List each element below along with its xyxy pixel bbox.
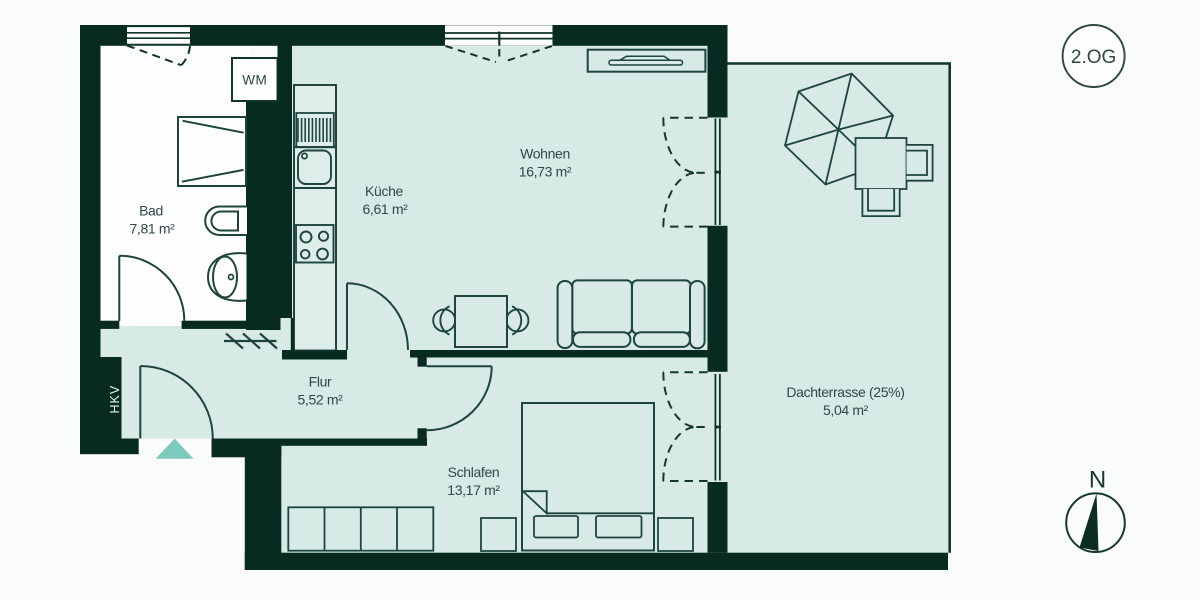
svg-text:7,81 m²: 7,81 m² <box>129 221 175 237</box>
svg-text:N: N <box>1089 467 1106 494</box>
svg-text:WM: WM <box>242 73 267 88</box>
svg-text:5,04 m²: 5,04 m² <box>823 402 869 418</box>
svg-text:Wohnen: Wohnen <box>520 146 570 162</box>
svg-text:13,17 m²: 13,17 m² <box>447 482 500 498</box>
svg-text:5,52 m²: 5,52 m² <box>297 392 343 408</box>
svg-text:6,61 m²: 6,61 m² <box>362 201 408 217</box>
svg-text:2.OG: 2.OG <box>1071 47 1116 68</box>
svg-text:Küche: Küche <box>365 183 404 199</box>
svg-text:Dachterrasse (25%): Dachterrasse (25%) <box>786 384 904 400</box>
svg-text:Schlafen: Schlafen <box>448 464 500 480</box>
svg-text:16,73 m²: 16,73 m² <box>519 164 572 180</box>
svg-text:Flur: Flur <box>309 374 332 390</box>
svg-text:HKV: HKV <box>108 385 122 414</box>
svg-text:Bad: Bad <box>139 203 163 219</box>
